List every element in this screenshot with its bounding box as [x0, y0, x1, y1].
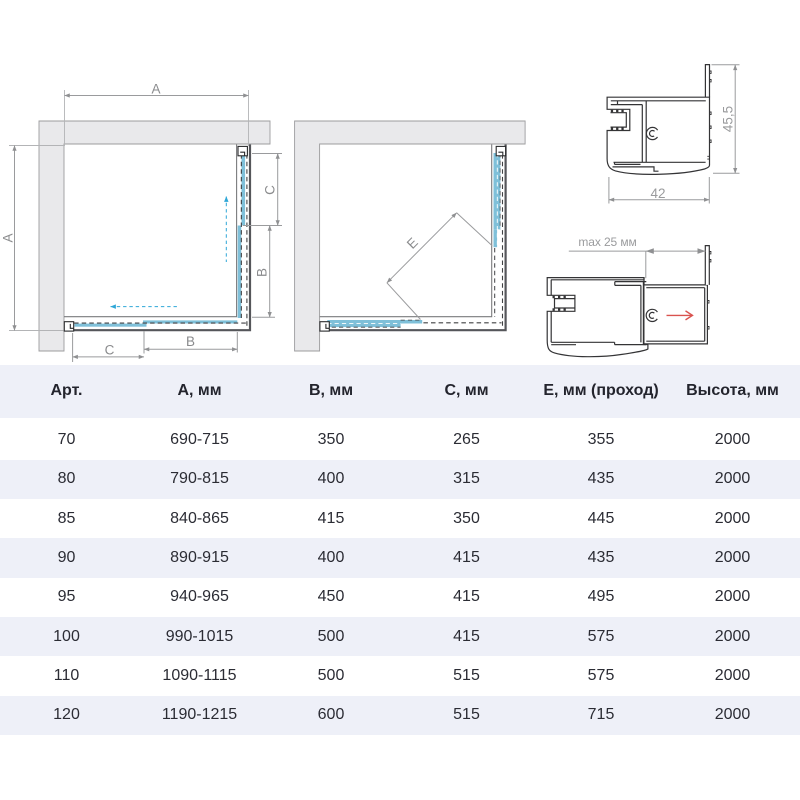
svg-text:B: B — [186, 334, 195, 349]
svg-text:42: 42 — [650, 186, 665, 201]
svg-text:45,5: 45,5 — [721, 106, 736, 132]
svg-text:B: B — [255, 268, 270, 277]
svg-text:A: A — [1, 233, 16, 242]
svg-text:C: C — [263, 185, 278, 195]
svg-text:E: E — [404, 235, 421, 252]
svg-text:C: C — [105, 343, 115, 358]
svg-text:A: A — [151, 82, 160, 97]
svg-text:max 25 мм: max 25 мм — [578, 235, 636, 249]
